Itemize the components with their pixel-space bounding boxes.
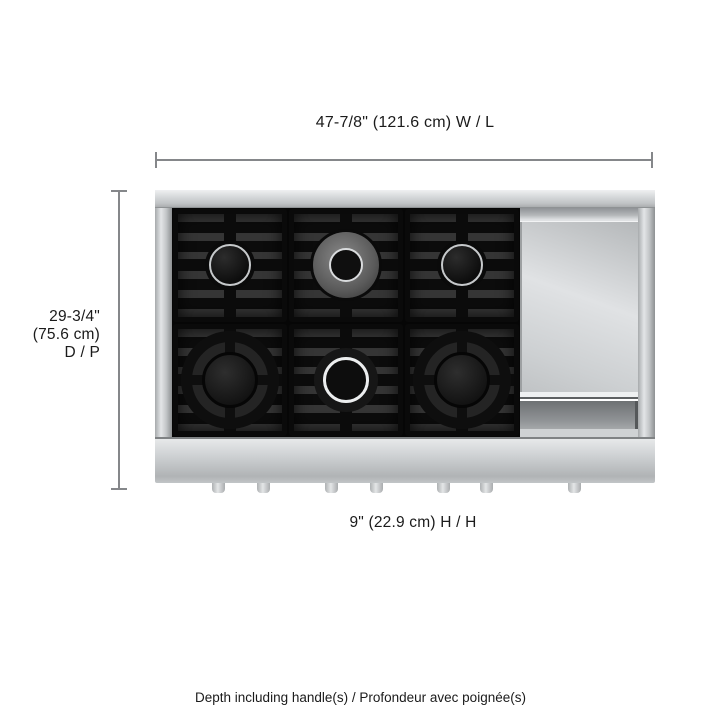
dimension-diagram: 47-7/8" (121.6 cm) W / L 29-3/4" (75.6 c… [0, 0, 721, 721]
grate-bottom-left [173, 324, 287, 437]
burner-cap [329, 248, 363, 282]
burner-bottom-left [181, 331, 279, 429]
dimension-tick-right [651, 152, 653, 168]
burner-top-center [313, 232, 379, 298]
rangetop-left-rail [155, 208, 172, 437]
dimension-tick-left [155, 152, 157, 168]
depth-dimension-label: 29-3/4" (75.6 cm) D / P [14, 308, 100, 362]
rangetop-unit [155, 190, 655, 483]
knob-stem [257, 483, 270, 493]
burner-cap [434, 352, 490, 408]
knob-stem [568, 483, 581, 493]
griddle-top-trim [520, 208, 638, 222]
grate-top-left [173, 209, 287, 322]
burner-grate-area [172, 208, 520, 437]
depth-dimension-line [118, 190, 120, 490]
burner-cap [202, 352, 258, 408]
grate-top-center [289, 209, 403, 322]
rangetop-right-rail [638, 208, 655, 437]
height-dimension-label: 9" (22.9 cm) H / H [155, 514, 671, 532]
control-panel [155, 437, 655, 483]
width-dimension-label: 47-7/8" (121.6 cm) W / L [155, 114, 655, 132]
burner-bottom-center [314, 348, 378, 412]
burner-cap [323, 357, 369, 403]
griddle-front-lip [520, 429, 638, 437]
griddle-section [520, 208, 638, 437]
footnote-text: Depth including handle(s) / Profondeur a… [0, 690, 721, 705]
knob-stem [437, 483, 450, 493]
dimension-tick-bottom [111, 488, 127, 490]
depth-value-cm: (75.6 cm) [14, 326, 100, 344]
knob-stem [212, 483, 225, 493]
rangetop-back-trim [155, 190, 655, 208]
grate-top-right [405, 209, 519, 322]
width-dimension-line [155, 159, 653, 161]
griddle-tray-recess [520, 401, 638, 429]
depth-unit-code: D / P [14, 344, 100, 362]
dimension-tick-top [111, 190, 127, 192]
knob-stem [325, 483, 338, 493]
burner-top-left [209, 244, 251, 286]
burner-top-right [441, 244, 483, 286]
grate-bottom-center [289, 324, 403, 437]
griddle-plate [520, 222, 638, 392]
knob-stem [480, 483, 493, 493]
grate-bottom-right [405, 324, 519, 437]
griddle-tray-handle [520, 392, 638, 399]
knob-stem [370, 483, 383, 493]
depth-value-inches: 29-3/4" [14, 308, 100, 326]
burner-bottom-right [413, 331, 511, 429]
